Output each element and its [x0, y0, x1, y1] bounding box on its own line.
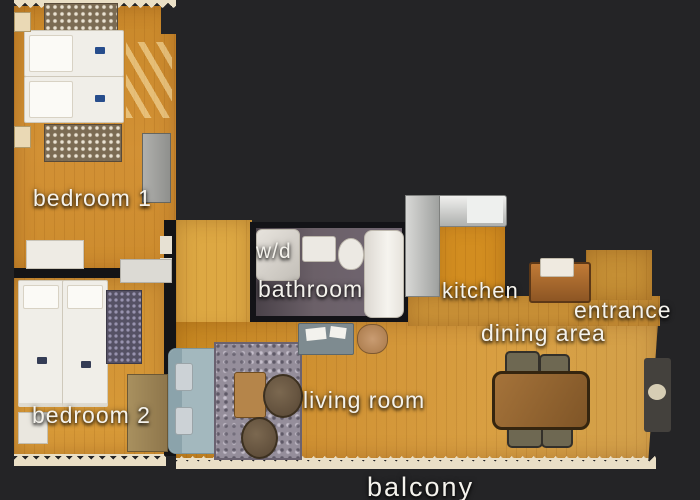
bed [24, 30, 124, 77]
bed [18, 280, 64, 407]
floor-plan-image: bedroom 1 bedroom 2 w/d bathroom kitchen… [0, 0, 700, 500]
toilet [338, 238, 364, 270]
room-label-bathroom: bathroom [258, 276, 363, 303]
towel [540, 258, 574, 277]
hallway-floor [176, 220, 252, 334]
coffee-table [234, 372, 266, 418]
fridge [467, 197, 503, 223]
room-label-bedroom-2: bedroom 2 [32, 402, 151, 429]
nightstand [14, 126, 31, 148]
entry-cabinet [644, 358, 671, 432]
bedroom1-rug-bottom [44, 124, 122, 162]
hall-closet [26, 240, 84, 269]
room-label-kitchen: kitchen [442, 278, 519, 304]
room-label-balcony: balcony [367, 472, 474, 500]
sink [302, 236, 336, 262]
bedroom1-rug-top [44, 3, 118, 32]
dining-table [492, 371, 590, 430]
room-label-bedroom-1: bedroom 1 [33, 185, 152, 212]
bed [62, 280, 108, 407]
door-leaf [160, 236, 172, 254]
kitchen-appliances [405, 195, 440, 297]
window-light [126, 42, 172, 118]
room-label-living-room: living room [303, 387, 425, 414]
room-label-dining-area: dining area [481, 320, 606, 347]
armchair [241, 417, 278, 459]
bathtub [364, 230, 404, 318]
entrance-floor [586, 250, 652, 300]
bedroom2-rug [106, 290, 142, 364]
scan-notch [161, 6, 176, 34]
armchair [263, 374, 303, 418]
side-table [298, 323, 354, 355]
chair [357, 324, 388, 354]
nightstand [14, 12, 31, 32]
bed [24, 76, 124, 123]
scan-fringe-bedroom2 [14, 454, 166, 466]
hall-shelf [120, 259, 172, 283]
room-label-washer-dryer: w/d [256, 240, 292, 264]
